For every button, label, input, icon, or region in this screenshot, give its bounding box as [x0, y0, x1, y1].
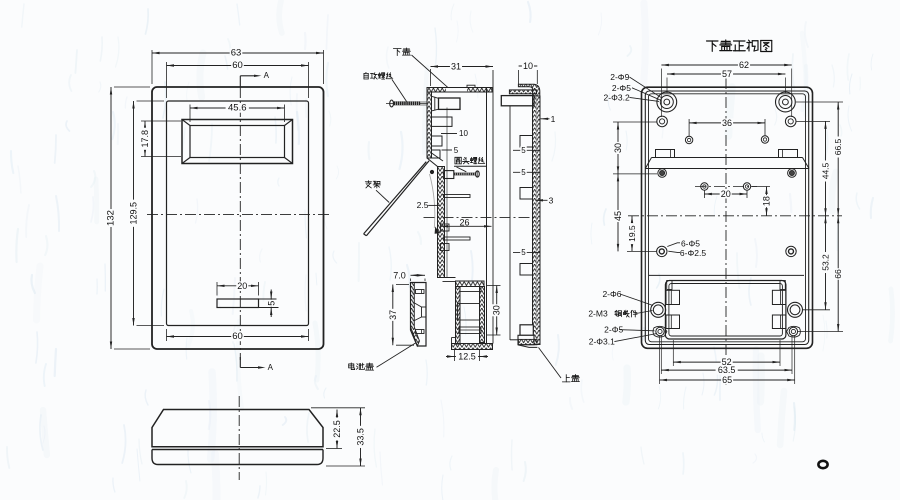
svg-text:20: 20: [721, 189, 731, 199]
svg-text:22.5: 22.5: [332, 420, 342, 438]
svg-text:44.5: 44.5: [821, 162, 831, 179]
svg-text:2-Φ6: 2-Φ6: [602, 289, 621, 299]
svg-text:3: 3: [549, 196, 554, 206]
svg-text:A: A: [264, 71, 270, 80]
svg-text:30: 30: [492, 305, 502, 315]
svg-text:26: 26: [459, 217, 469, 227]
svg-text:5: 5: [266, 301, 276, 306]
svg-text:6-Φ5: 6-Φ5: [681, 238, 700, 248]
svg-text:2-Φ3.2: 2-Φ3.2: [604, 92, 630, 102]
svg-text:65: 65: [722, 375, 732, 385]
svg-text:63.5: 63.5: [718, 365, 736, 375]
svg-text:2-Φ5: 2-Φ5: [612, 83, 631, 93]
svg-text:62: 62: [739, 60, 749, 70]
svg-text:60: 60: [232, 331, 243, 342]
svg-text:36: 36: [722, 118, 732, 128]
svg-text:45: 45: [613, 211, 623, 221]
svg-text:10: 10: [523, 61, 533, 71]
svg-text:17.8: 17.8: [140, 130, 150, 148]
svg-text:12.5: 12.5: [458, 352, 476, 362]
svg-text:53.2: 53.2: [821, 254, 831, 271]
svg-text:A: A: [268, 363, 274, 372]
svg-text:5: 5: [454, 146, 459, 155]
svg-text:37: 37: [388, 310, 398, 320]
svg-text:63: 63: [231, 48, 242, 59]
svg-text:132: 132: [106, 210, 117, 226]
svg-text:10: 10: [459, 129, 468, 138]
svg-text:2.5: 2.5: [417, 200, 429, 210]
svg-text:30: 30: [613, 143, 623, 153]
svg-text:33.5: 33.5: [356, 428, 366, 446]
svg-text:45.6: 45.6: [228, 103, 247, 114]
svg-text:5: 5: [521, 146, 526, 155]
svg-text:5: 5: [521, 168, 526, 177]
svg-text:18: 18: [762, 196, 772, 206]
svg-text:57: 57: [722, 69, 732, 79]
svg-text:7.0: 7.0: [393, 270, 406, 280]
svg-text:66.5: 66.5: [833, 138, 843, 155]
svg-text:66: 66: [833, 269, 843, 279]
svg-text:60: 60: [232, 60, 243, 71]
svg-text:1: 1: [551, 114, 556, 124]
svg-text:20: 20: [237, 281, 247, 291]
svg-text:2-Φ9: 2-Φ9: [610, 72, 629, 82]
svg-text:31: 31: [451, 62, 461, 72]
svg-text:129.5: 129.5: [129, 202, 139, 225]
svg-text:2-Φ3.1: 2-Φ3.1: [589, 337, 615, 347]
svg-text:2-M3: 2-M3: [588, 309, 608, 319]
svg-text:6-Φ2.5: 6-Φ2.5: [680, 248, 706, 258]
svg-text:5: 5: [521, 248, 526, 257]
svg-text:19.5: 19.5: [627, 225, 637, 242]
